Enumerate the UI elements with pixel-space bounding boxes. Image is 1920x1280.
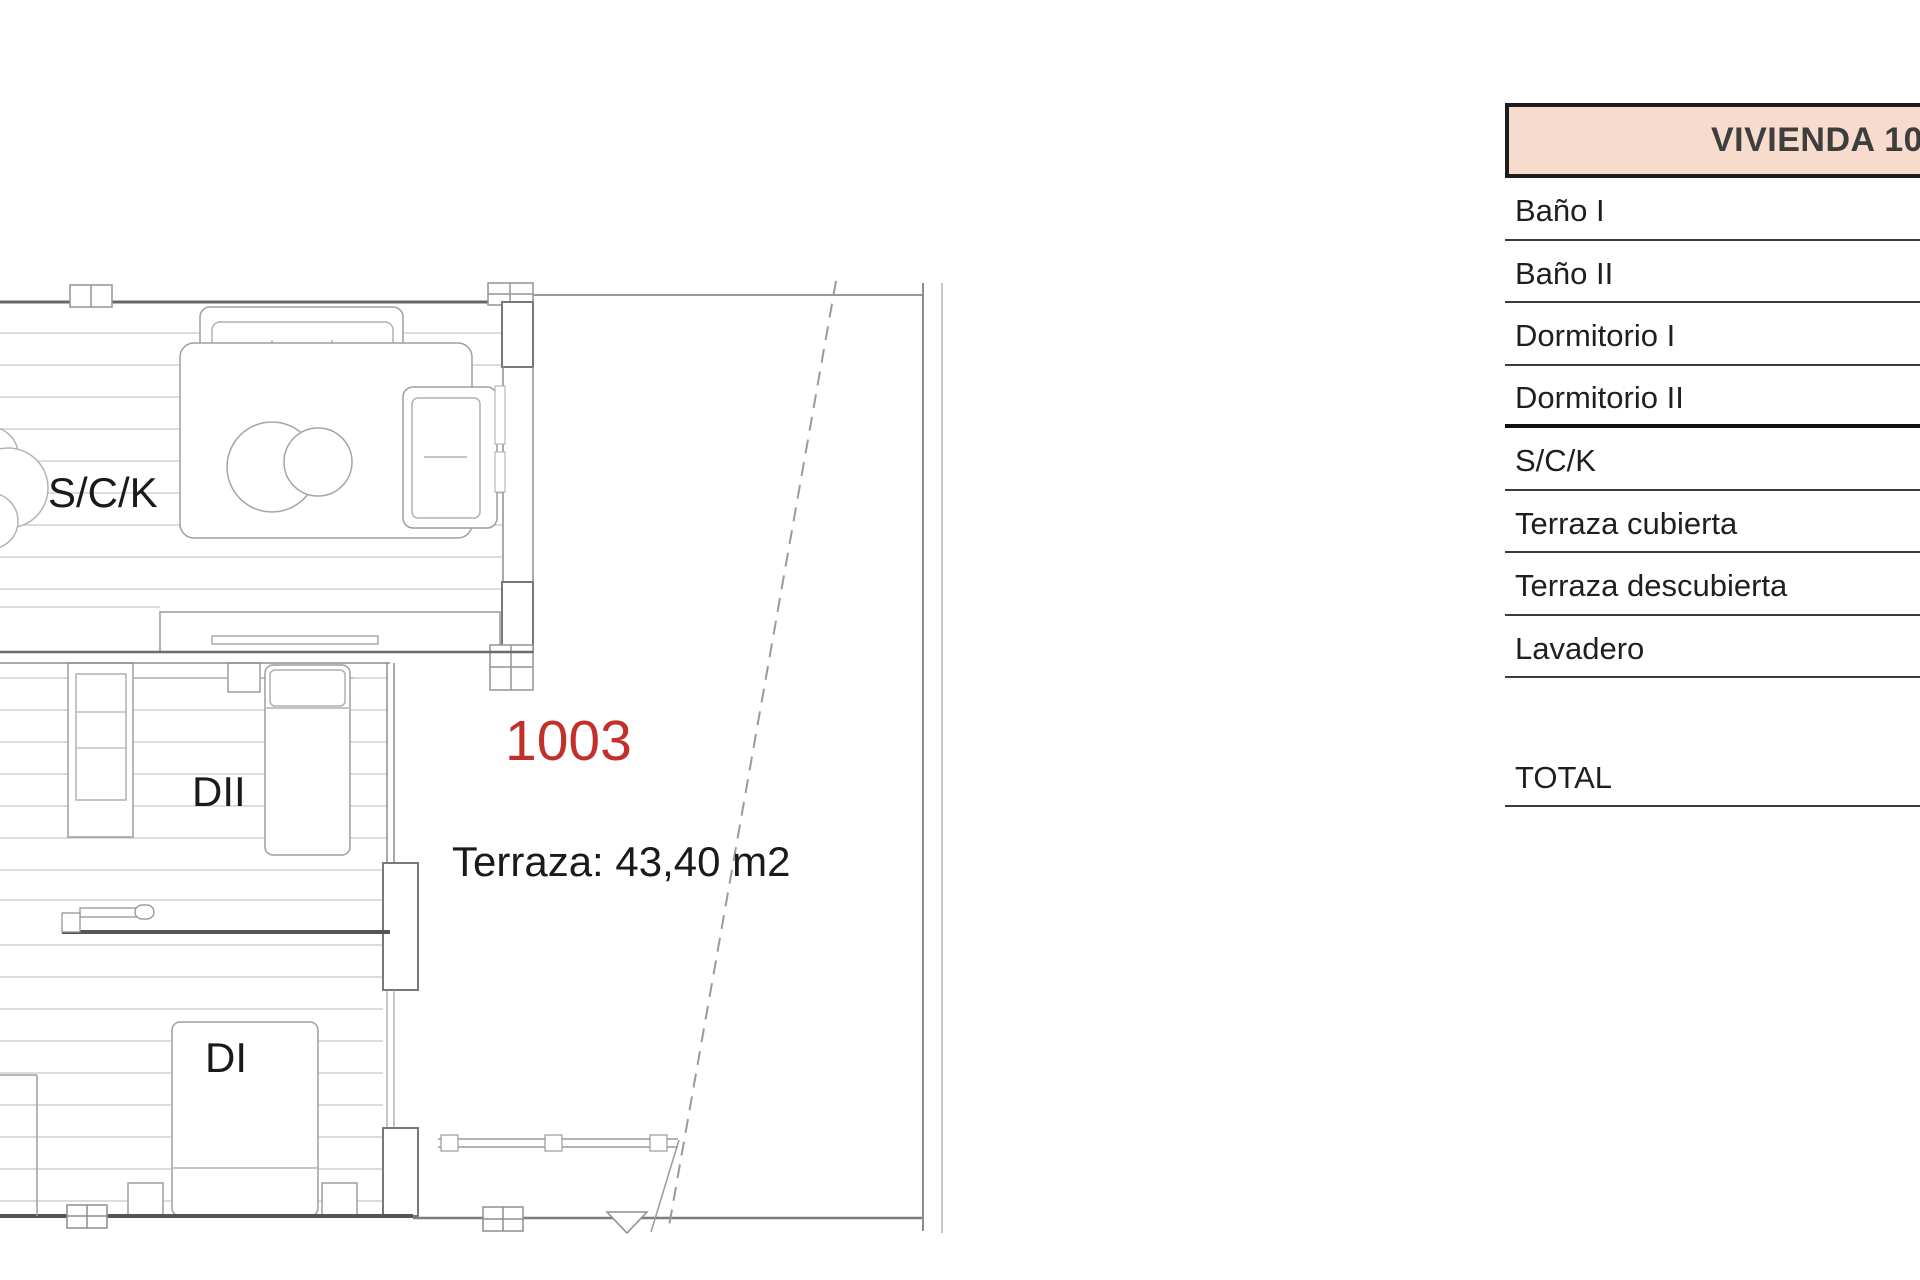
table-row: Dormitorio II [1505,366,1920,429]
total-label: TOTAL [1515,760,1612,796]
table-row: Lavadero [1505,616,1920,679]
unit-number-label: 1003 [505,709,632,773]
row-label: Dormitorio I [1515,318,1675,354]
furniture [0,307,500,1216]
plant-table [0,427,48,549]
row-label: S/C/K [1515,443,1596,479]
column-top [502,302,533,367]
row-label: Terraza cubierta [1515,506,1737,542]
pier-upper [383,863,418,990]
sofa [180,307,497,538]
table-row: S/C/K [1505,428,1920,491]
page: S/C/K DII DI 1003 Terraza: 43,40 m2 VIVI… [0,0,1920,1280]
bed-dii [265,665,350,855]
window-north [70,285,112,307]
table-row: Terraza descubierta [1505,553,1920,616]
summary-header: VIVIENDA 10 [1505,103,1920,178]
window-south-left [67,1205,107,1228]
table-row: Dormitorio I [1505,303,1920,366]
row-label: Dormitorio II [1515,380,1684,416]
sliding-door [62,905,154,932]
table-spacer [1505,678,1920,745]
row-label: Terraza descubierta [1515,568,1787,604]
pier-lower [383,1128,418,1216]
row-label: Baño I [1515,193,1605,229]
floor-plan: S/C/K DII DI 1003 Terraza: 43,40 m2 [0,0,960,1280]
nightstand-right [322,1183,357,1216]
plan-labels: S/C/K DII DI 1003 Terraza: 43,40 m2 [48,469,791,1081]
table-row: Terraza cubierta [1505,491,1920,554]
door-swing-marker [607,1212,647,1233]
terrace-area-label: Terraza: 43,40 m2 [452,838,791,885]
column-mid [502,582,533,652]
table-row: Baño I [1505,178,1920,241]
row-label: Baño II [1515,256,1613,292]
summary-table: VIVIENDA 10 Baño I Baño II Dormitorio I … [1505,103,1920,807]
row-label: Lavadero [1515,631,1644,667]
living-label: S/C/K [48,469,158,516]
summary-header-title: VIVIENDA 10 [1711,121,1920,160]
bedroom1-label: DI [205,1034,247,1081]
kitchen-counter [160,612,500,652]
table-row: Baño II [1505,241,1920,304]
table-row-total: TOTAL [1505,745,1920,807]
bedroom2-label: DII [192,768,246,815]
nightstand-left [128,1183,163,1216]
boundary-dashed-line [668,281,836,1232]
window-south-terrace [483,1207,523,1231]
